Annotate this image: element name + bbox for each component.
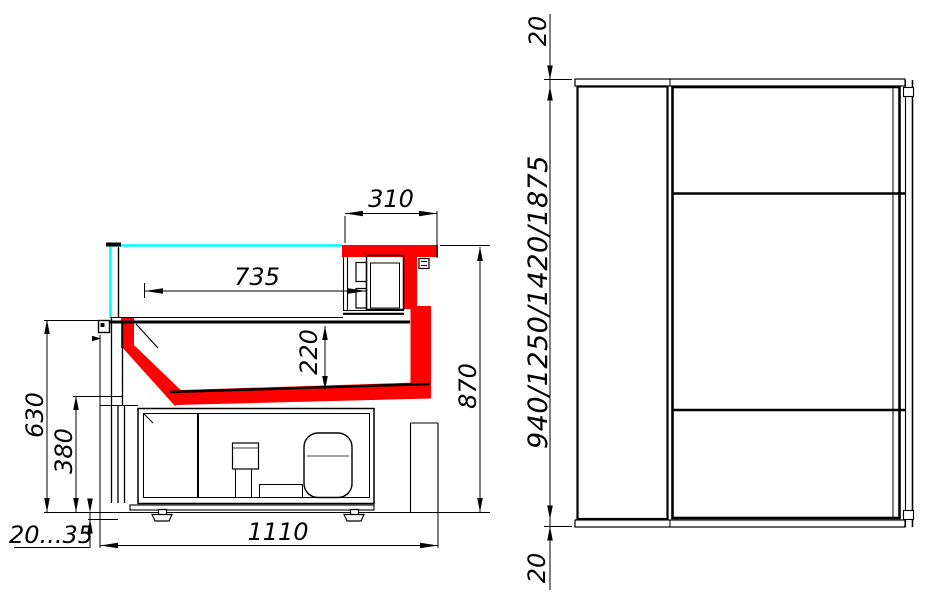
dimension-line — [73, 396, 123, 512]
corner-brace — [144, 414, 154, 424]
top-edge-strip — [575, 79, 905, 86]
machine-bay-inner — [144, 414, 370, 498]
drip-tray — [260, 485, 303, 498]
glass-front — [106, 243, 342, 318]
dim-label-worktop-height: 630 — [21, 392, 49, 438]
evaporator-brackets — [356, 263, 367, 309]
dim-label-leg-adjust: 20...35 — [9, 521, 93, 549]
left-bracket-pin — [101, 323, 105, 327]
rear-panel — [343, 257, 404, 311]
dimension-220: 220 — [295, 326, 328, 390]
electric-box — [233, 443, 259, 469]
dim-label-well-height: 220 — [295, 329, 323, 375]
well-slope-highlight — [121, 346, 189, 406]
technical-drawing-page: 310 735 220 630 380 — [0, 0, 930, 606]
adjustable-foot-right — [344, 510, 364, 522]
duct-stem-highlight — [404, 256, 417, 309]
rail-clip-top — [904, 88, 914, 97]
fan-housing-inner — [371, 263, 400, 308]
dim-label-length-options: 940/1250/1420/1875 — [523, 155, 554, 449]
machine-compartment — [130, 409, 374, 522]
plan-view: 20 940/1250/1420/1875 20 — [523, 14, 914, 590]
dim-label-display-depth: 735 — [234, 263, 280, 291]
dim-label-canopy-depth: 310 — [368, 185, 414, 213]
worktop-panel — [578, 87, 668, 520]
shelf-dividers — [672, 194, 905, 411]
dimension-leg-adjust: 20...35 — [9, 499, 93, 550]
front-lower-panel — [411, 423, 439, 512]
glass-top-cap — [106, 243, 121, 247]
plan-dimensions: 20 940/1250/1420/1875 20 — [523, 14, 572, 590]
dimension-735: 735 — [145, 263, 367, 298]
fan-housing — [367, 256, 404, 310]
dim-label-overall-depth: 1110 — [247, 518, 308, 546]
lamp-bracket — [419, 259, 429, 269]
section-view: 310 735 220 630 380 — [9, 185, 490, 549]
dimension-630: 630 — [21, 320, 110, 512]
dim-label-base-height: 380 — [50, 428, 78, 474]
glass-pane — [111, 245, 343, 317]
left-wall — [112, 318, 125, 503]
compressor — [304, 433, 352, 498]
display-body — [673, 87, 900, 518]
plan-structure — [575, 79, 914, 527]
dim-label-bottom-overhang: 20 — [523, 553, 551, 584]
rail-clip-bottom — [904, 511, 914, 520]
lamp-bracket-ticks — [421, 262, 427, 266]
electric-box-stand — [236, 469, 252, 498]
dimension-870: 870 — [440, 246, 490, 513]
drawing-canvas: 310 735 220 630 380 — [0, 0, 930, 606]
dim-label-top-overhang: 20 — [524, 16, 552, 47]
adjustable-foot-left — [152, 510, 172, 522]
bottom-edge-strip — [575, 520, 905, 527]
dim-label-overall-height: 870 — [454, 363, 482, 409]
